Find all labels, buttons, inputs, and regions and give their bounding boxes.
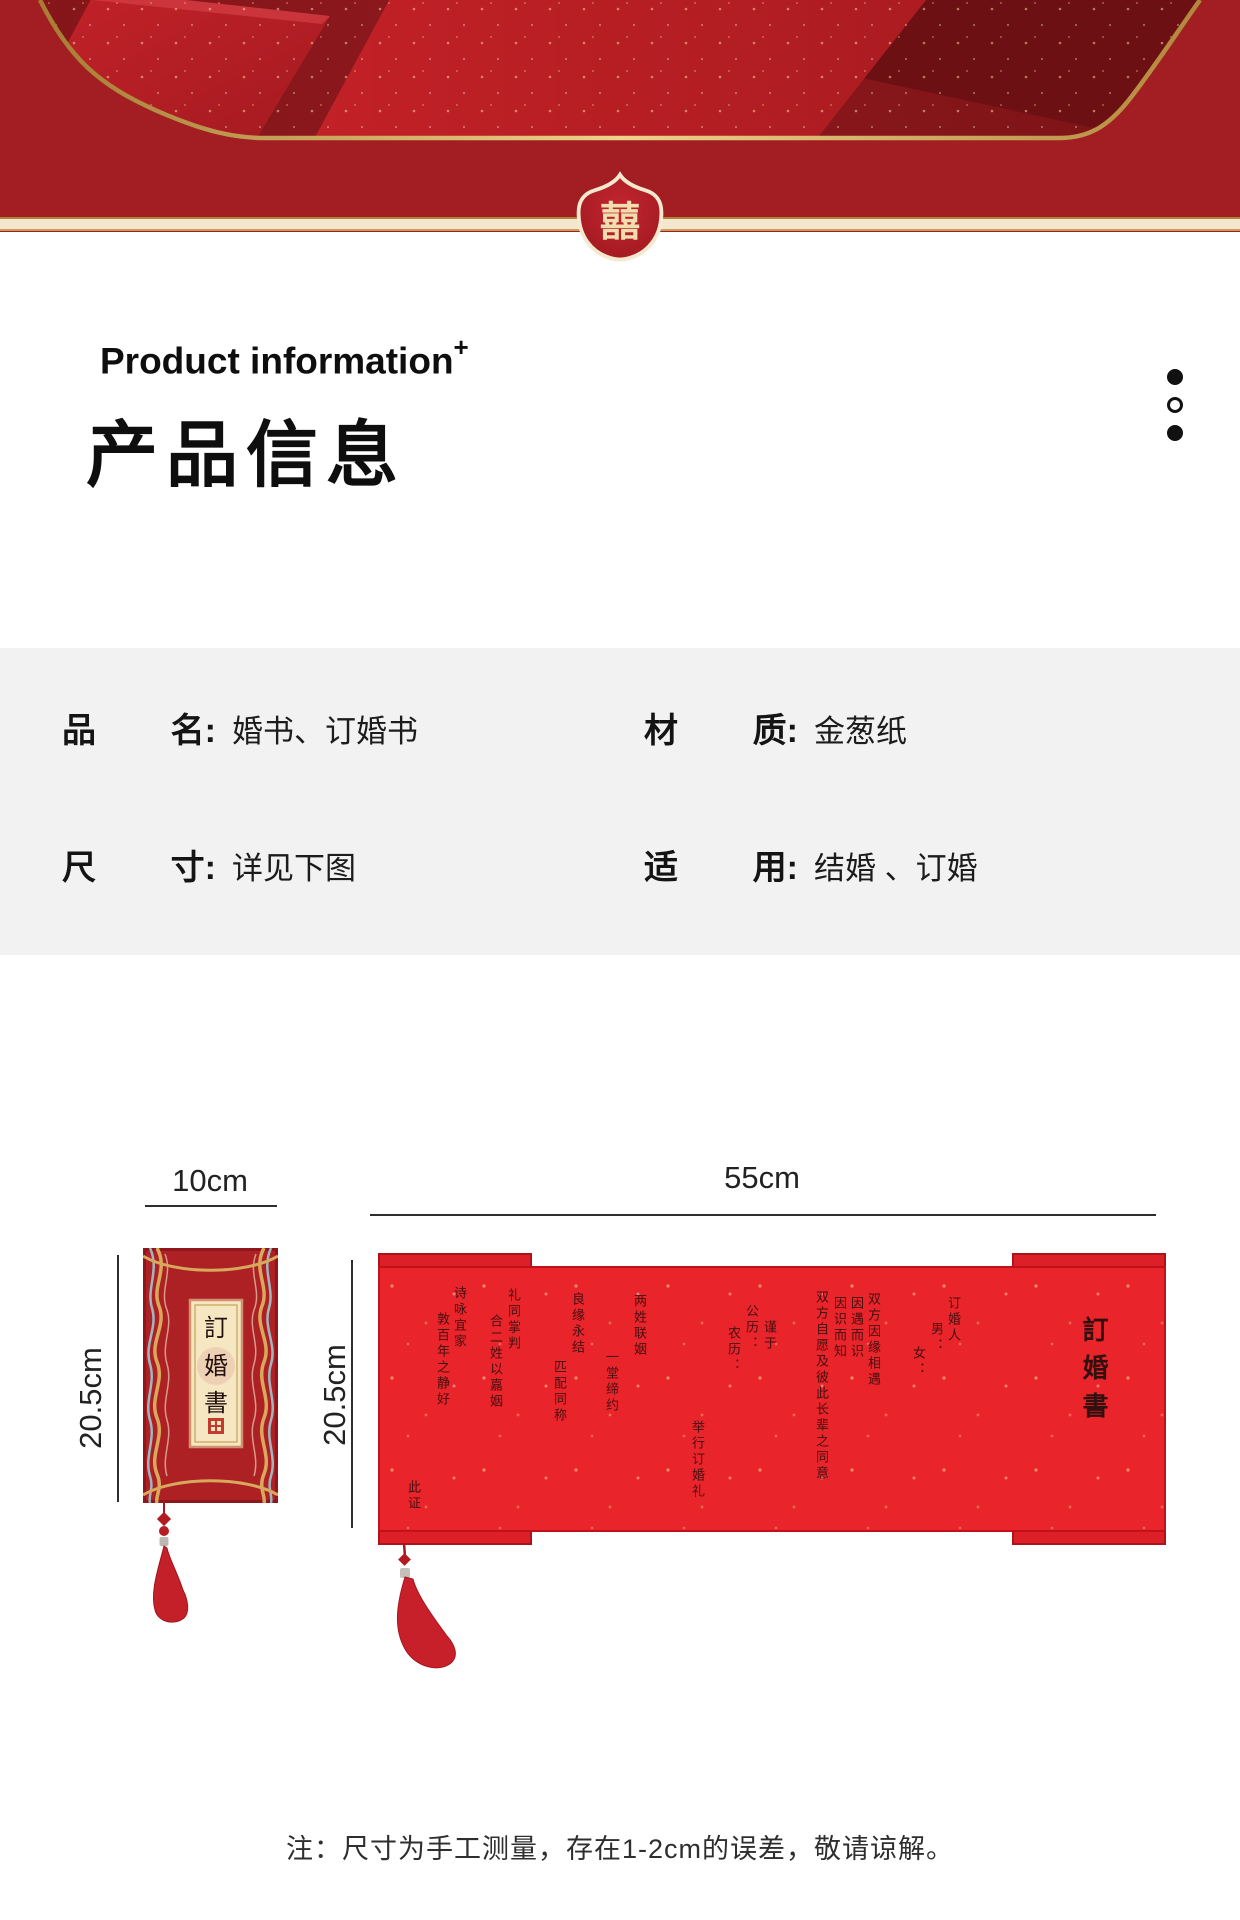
scroll-text-column: 一堂缔约 — [604, 1350, 617, 1414]
cover-width-line — [145, 1205, 277, 1207]
product-detail-page: 囍 Product information+ 产品信息 品 名: 婚书、订婚书 … — [0, 0, 1240, 1920]
cover-title-char: 婚 — [204, 1352, 228, 1380]
dot-hollow — [1167, 397, 1183, 413]
plus-mark: + — [454, 332, 469, 362]
scroll-text-column: 诗咏宜家 — [452, 1286, 465, 1350]
spec-size: 尺 寸: 详见下图 — [62, 840, 356, 889]
double-happiness-badge: 囍 — [572, 170, 668, 266]
cover-illustration: 訂 婚 書 — [143, 1248, 278, 1503]
cover-title-char: 訂 — [204, 1314, 228, 1342]
spec-label-char: 寸: — [171, 840, 216, 889]
spec-label: 品 名: — [62, 703, 216, 752]
spec-label-char: 材 — [644, 703, 678, 752]
dot-ornament — [1167, 369, 1183, 453]
spec-product-name: 品 名: 婚书、订婚书 — [62, 703, 418, 752]
scroll-text-column: 两姓联姻 — [632, 1294, 645, 1358]
scroll-text-column: 敦百年之静好 — [435, 1312, 448, 1408]
spec-value: 结婚 、订婚 — [814, 843, 978, 888]
cover-height-label: 20.5cm — [73, 1343, 103, 1453]
spec-material: 材 质: 金葱纸 — [644, 703, 907, 752]
cover-width-label: 10cm — [140, 1163, 280, 1199]
scroll-text-column: 农历： — [726, 1326, 739, 1374]
scroll-width-line — [370, 1214, 1156, 1216]
spec-label-char: 名: — [171, 703, 216, 752]
spec-label-char: 质: — [753, 703, 798, 752]
scroll-text-column: 公历： — [744, 1304, 757, 1352]
scroll-text-column: 举行订婚礼 — [690, 1420, 703, 1500]
scroll-text-column: 匹配同称 — [552, 1360, 565, 1424]
scroll-text-column: 女： — [911, 1346, 924, 1378]
scroll-text-column: 订婚人 — [946, 1296, 959, 1344]
specs-panel — [0, 648, 1240, 955]
cover-title-char: 書 — [204, 1389, 228, 1417]
scroll-text-column: 因遇而识 — [849, 1296, 862, 1360]
spec-label: 材 质: — [644, 703, 798, 752]
spec-value: 金葱纸 — [814, 706, 907, 751]
scroll-text-column: 合二姓以嘉姻 — [488, 1314, 501, 1410]
dot-filled-2 — [1167, 425, 1183, 441]
measurement-note: 注：尺寸为手工测量，存在1-2cm的误差，敬请谅解。 — [0, 1827, 1240, 1866]
section-title-zh: 产品信息 — [86, 396, 406, 501]
double-happiness-glyph: 囍 — [600, 197, 640, 245]
spec-label: 适 用: — [644, 840, 798, 889]
cover-red-seal — [208, 1418, 224, 1434]
spec-label-char: 尺 — [62, 840, 96, 889]
scroll-width-label: 55cm — [692, 1160, 832, 1196]
section-title-en-text: Product information — [100, 340, 454, 381]
spec-label: 尺 寸: — [62, 840, 216, 889]
scroll-tassel — [383, 1543, 493, 1683]
cover-height-line — [117, 1255, 119, 1502]
scroll-text-column: 双方自愿及彼此长辈之同意 — [814, 1290, 827, 1482]
scroll-height-label: 20.5cm — [317, 1340, 347, 1450]
scroll-text-column: 此证 — [406, 1480, 419, 1512]
dot-filled-1 — [1167, 369, 1183, 385]
spec-value: 详见下图 — [232, 843, 356, 888]
spec-usage: 适 用: 结婚 、订婚 — [644, 840, 978, 889]
spec-label-char: 用: — [753, 840, 798, 889]
scroll-text-column: 男： — [929, 1322, 942, 1354]
scroll-text-column: 良缘永结 — [570, 1292, 583, 1356]
cover-tassel — [140, 1500, 200, 1635]
cover-title-label: 訂 婚 書 — [190, 1300, 242, 1447]
scroll-text-column: 双方因缘相遇 — [866, 1292, 879, 1388]
section-title-en: Product information+ — [100, 336, 469, 382]
spec-value: 婚书、订婚书 — [232, 706, 418, 751]
spec-label-char: 品 — [62, 703, 96, 752]
scroll-illustration: 訂婚書订婚人男：女：双方因缘相遇因遇而识因识而知双方自愿及彼此长辈之同意谨于公历… — [378, 1266, 1166, 1532]
spec-label-char: 适 — [644, 840, 678, 889]
scroll-text-column: 因识而知 — [832, 1296, 845, 1360]
scroll-text-column: 谨于 — [762, 1320, 775, 1352]
scroll-text-column: 礼同掌判 — [506, 1288, 519, 1352]
scroll-title: 訂婚書 — [1080, 1316, 1106, 1430]
